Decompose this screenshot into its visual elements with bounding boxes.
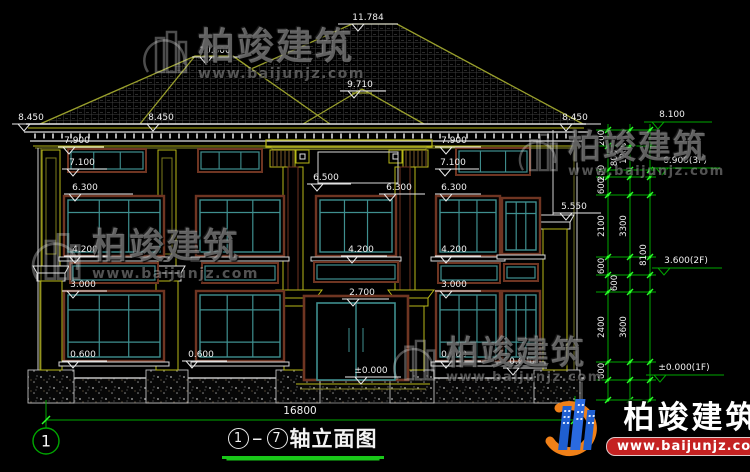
window-1f-bay-d <box>497 291 545 366</box>
chain-dim-label: 3600 <box>619 316 629 338</box>
elevation-mark-label: 8.450 <box>562 113 588 123</box>
elevation-mark-label: 5.550 <box>561 202 587 212</box>
elevation-mark: ±0.000(1F) <box>646 363 724 382</box>
elevation-mark-label: 4.200 <box>441 245 467 255</box>
elevation-mark-label: 8.450 <box>18 113 44 123</box>
spandrel-bay-b <box>202 263 278 283</box>
elevation-mark-label: 0.600 <box>70 350 96 360</box>
elevation-mark-label: 6.300 <box>441 183 467 193</box>
elevation-mark-label: 8.450 <box>148 113 174 123</box>
elevation-mark-label: 3.000 <box>441 280 467 290</box>
elevation-mark: 6.900(3F) <box>650 156 720 175</box>
svg-text:1: 1 <box>41 432 51 451</box>
spandrel-center <box>314 262 398 282</box>
chain-dim-label: 2100 <box>597 215 607 237</box>
elevation-mark-label: 3.000 <box>70 280 96 290</box>
elevation-mark-label: 6.300 <box>72 183 98 193</box>
chain-dim-label: 600 <box>597 363 607 379</box>
frieze-window-bay-c <box>456 148 530 175</box>
chain-dim-label: 3300 <box>619 215 629 237</box>
title-dash: – <box>252 426 264 450</box>
pilaster-right <box>536 130 574 370</box>
windows-and-door <box>59 148 545 380</box>
elevation-mark-label: ±0.000 <box>354 366 388 376</box>
title-text: 轴立面图 <box>290 423 378 453</box>
elevation-mark-label: 10.800 <box>199 46 231 56</box>
elevation-mark-label: 6.500 <box>313 173 339 183</box>
elevation-mark: 3.600(2F) <box>652 256 722 275</box>
elevation-mark-label: 7.100 <box>69 158 95 168</box>
hip-roof <box>40 24 583 124</box>
baijun-logo: 柏竣建筑 www.baijunjz.com <box>540 394 750 464</box>
elevation-mark-label: 7.900 <box>441 136 467 146</box>
elevation-mark-label: 3.600(2F) <box>664 256 708 266</box>
dimension-chains-layer: 2008002006002100600600240060012003300360… <box>596 110 724 403</box>
elevation-mark-label: 6.900(3F) <box>663 156 707 166</box>
logo-brand: 柏竣建筑 <box>623 403 750 434</box>
elevation-mark-label: 7.100 <box>440 158 466 168</box>
elevation-mark-label: 2.700 <box>349 288 375 298</box>
chain-dim-label: 1200 <box>619 142 629 164</box>
elevation-mark-label: 11.784 <box>352 13 384 23</box>
chain-dim-label: 200 <box>597 130 607 146</box>
eave-cornice <box>24 124 588 148</box>
spandrel-bay-d <box>504 264 538 281</box>
window-2f-bay-b <box>191 196 289 261</box>
baijun-logo-icon <box>540 394 602 464</box>
frieze-window-bay-b <box>198 149 262 172</box>
elevation-mark-label: 7.900 <box>64 136 90 146</box>
cad-elevation-screenshot: 11.78410.8009.7108.4508.4508.4507.9007.9… <box>0 0 750 472</box>
elevation-mark-label: ±0.000(1F) <box>658 363 709 373</box>
window-2f-bay-d <box>497 198 545 259</box>
elevation-mark-label: 4.200 <box>348 245 374 255</box>
elevation-mark-label: 9.710 <box>347 80 373 90</box>
axis-bubble-1: 1 <box>33 428 59 454</box>
elevation-mark-label: 8.100 <box>659 110 685 120</box>
drawing-title: 1 – 7 轴立面图 <box>222 423 384 459</box>
logo-url: www.baijunjz.com <box>606 437 750 456</box>
elevation-mark-label: 0.600 <box>509 357 535 367</box>
portico-capitals <box>270 150 428 167</box>
overall-width-dim: 16800 <box>283 405 316 417</box>
elevation-mark-label: 0.600 <box>441 350 467 360</box>
chain-dim-label: 2400 <box>597 316 607 338</box>
axis-circle-1: 1 <box>228 428 249 449</box>
chain-dim-label: 600 <box>597 178 607 194</box>
chain-dim-label: 600 <box>610 275 620 291</box>
elevation-mark: 6.500 <box>307 173 351 191</box>
elevation-mark-label: 4.200 <box>72 245 98 255</box>
chain-dim-label: 600 <box>597 258 607 274</box>
elevation-mark-label: 6.300 <box>386 183 412 193</box>
elevation-mark-label: 0.600 <box>188 350 214 360</box>
elevation-mark: 8.100 <box>644 110 712 129</box>
chain-dim-label: 8100 <box>639 244 649 266</box>
axis-circle-7: 7 <box>267 428 288 449</box>
